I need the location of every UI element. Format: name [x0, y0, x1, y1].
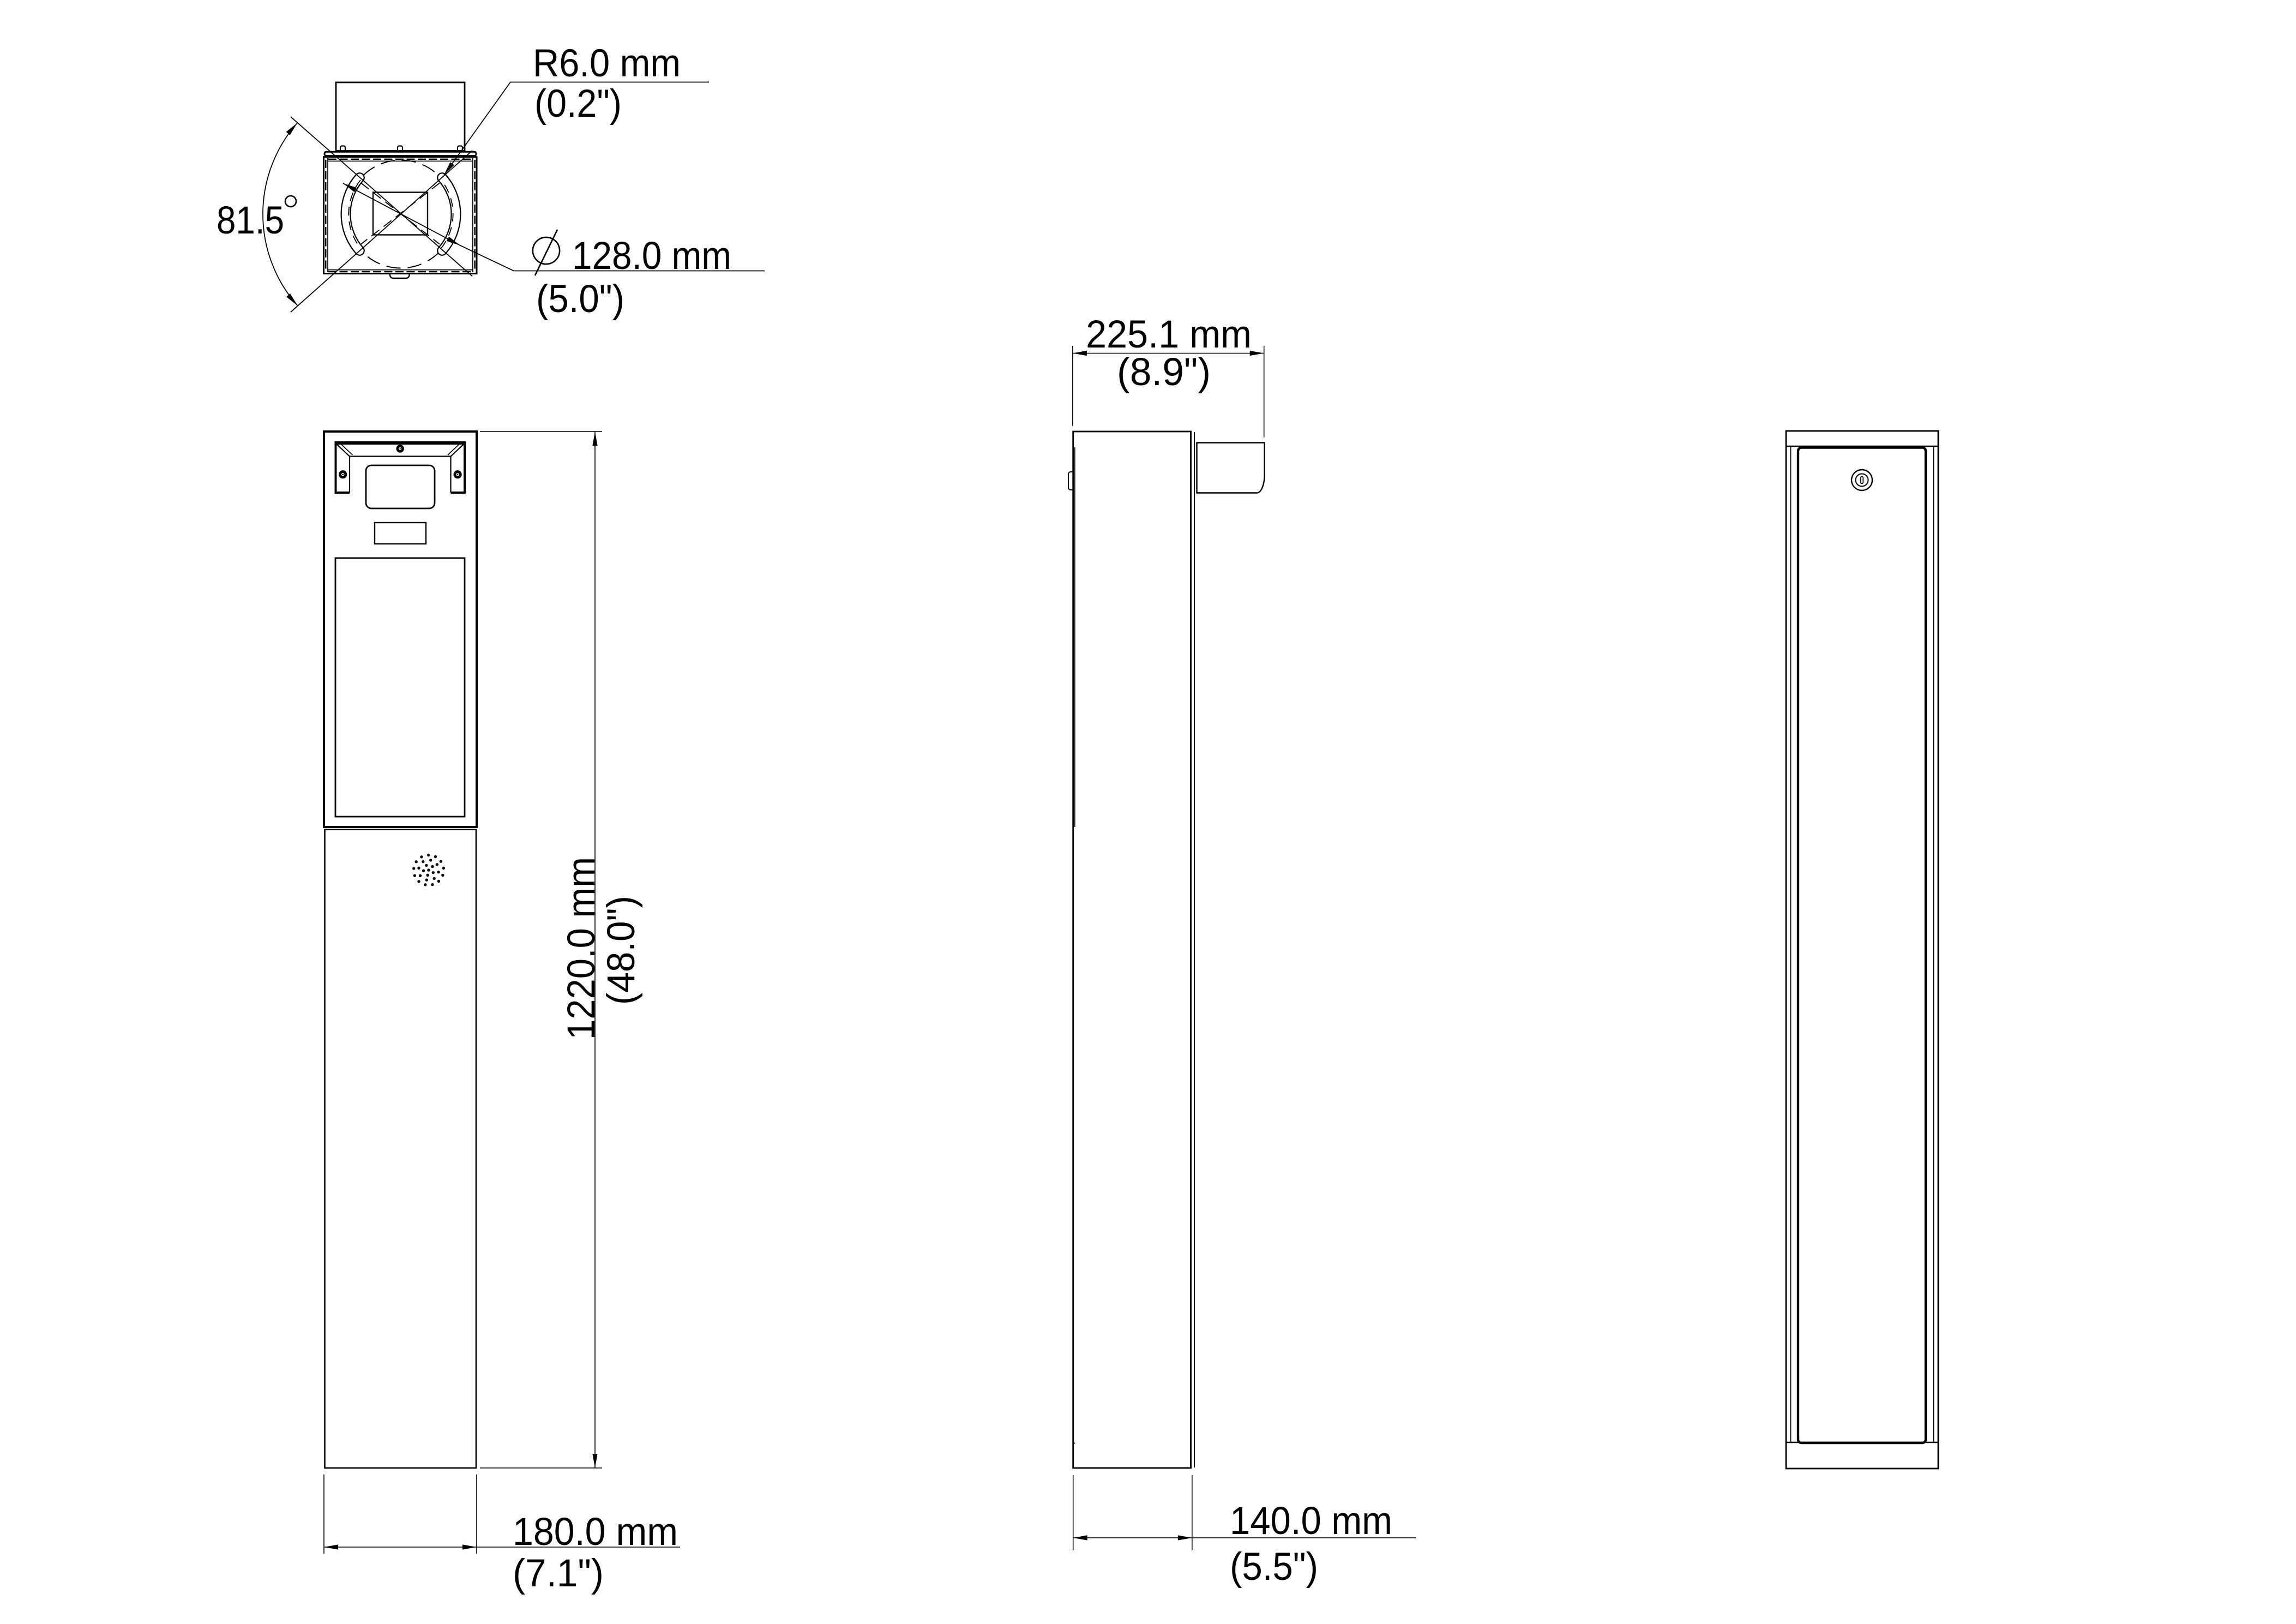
svg-text:(0.2"): (0.2") [534, 82, 622, 125]
svg-text:(7.1"): (7.1") [513, 1552, 604, 1595]
svg-text:(5.0"): (5.0") [536, 278, 624, 321]
svg-text:180.0 mm: 180.0 mm [513, 1511, 678, 1554]
svg-text:128.0 mm: 128.0 mm [572, 235, 731, 278]
svg-text:140.0 mm: 140.0 mm [1230, 1500, 1392, 1543]
svg-text:81.5: 81.5 [217, 199, 284, 242]
svg-text:(8.9"): (8.9") [1117, 351, 1211, 394]
svg-text:(48.0"): (48.0") [600, 896, 643, 1005]
svg-text:1220.0 mm: 1220.0 mm [560, 857, 603, 1040]
svg-text:225.1 mm: 225.1 mm [1086, 313, 1252, 356]
svg-text:(5.5"): (5.5") [1230, 1545, 1318, 1589]
svg-text:R6.0 mm: R6.0 mm [533, 42, 681, 85]
